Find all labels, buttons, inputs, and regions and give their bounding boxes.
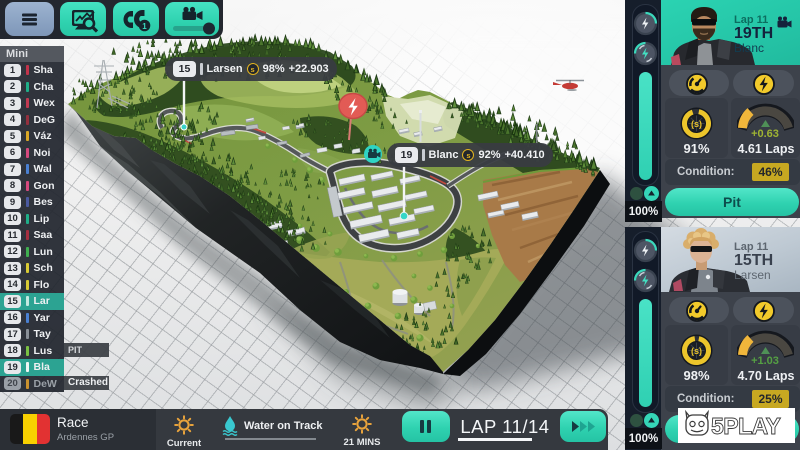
svg-text:5PLAY: 5PLAY — [711, 413, 781, 439]
svg-text:(s): (s) — [691, 346, 702, 356]
svg-text:(s): (s) — [691, 119, 702, 129]
svg-text:1: 1 — [142, 22, 147, 31]
